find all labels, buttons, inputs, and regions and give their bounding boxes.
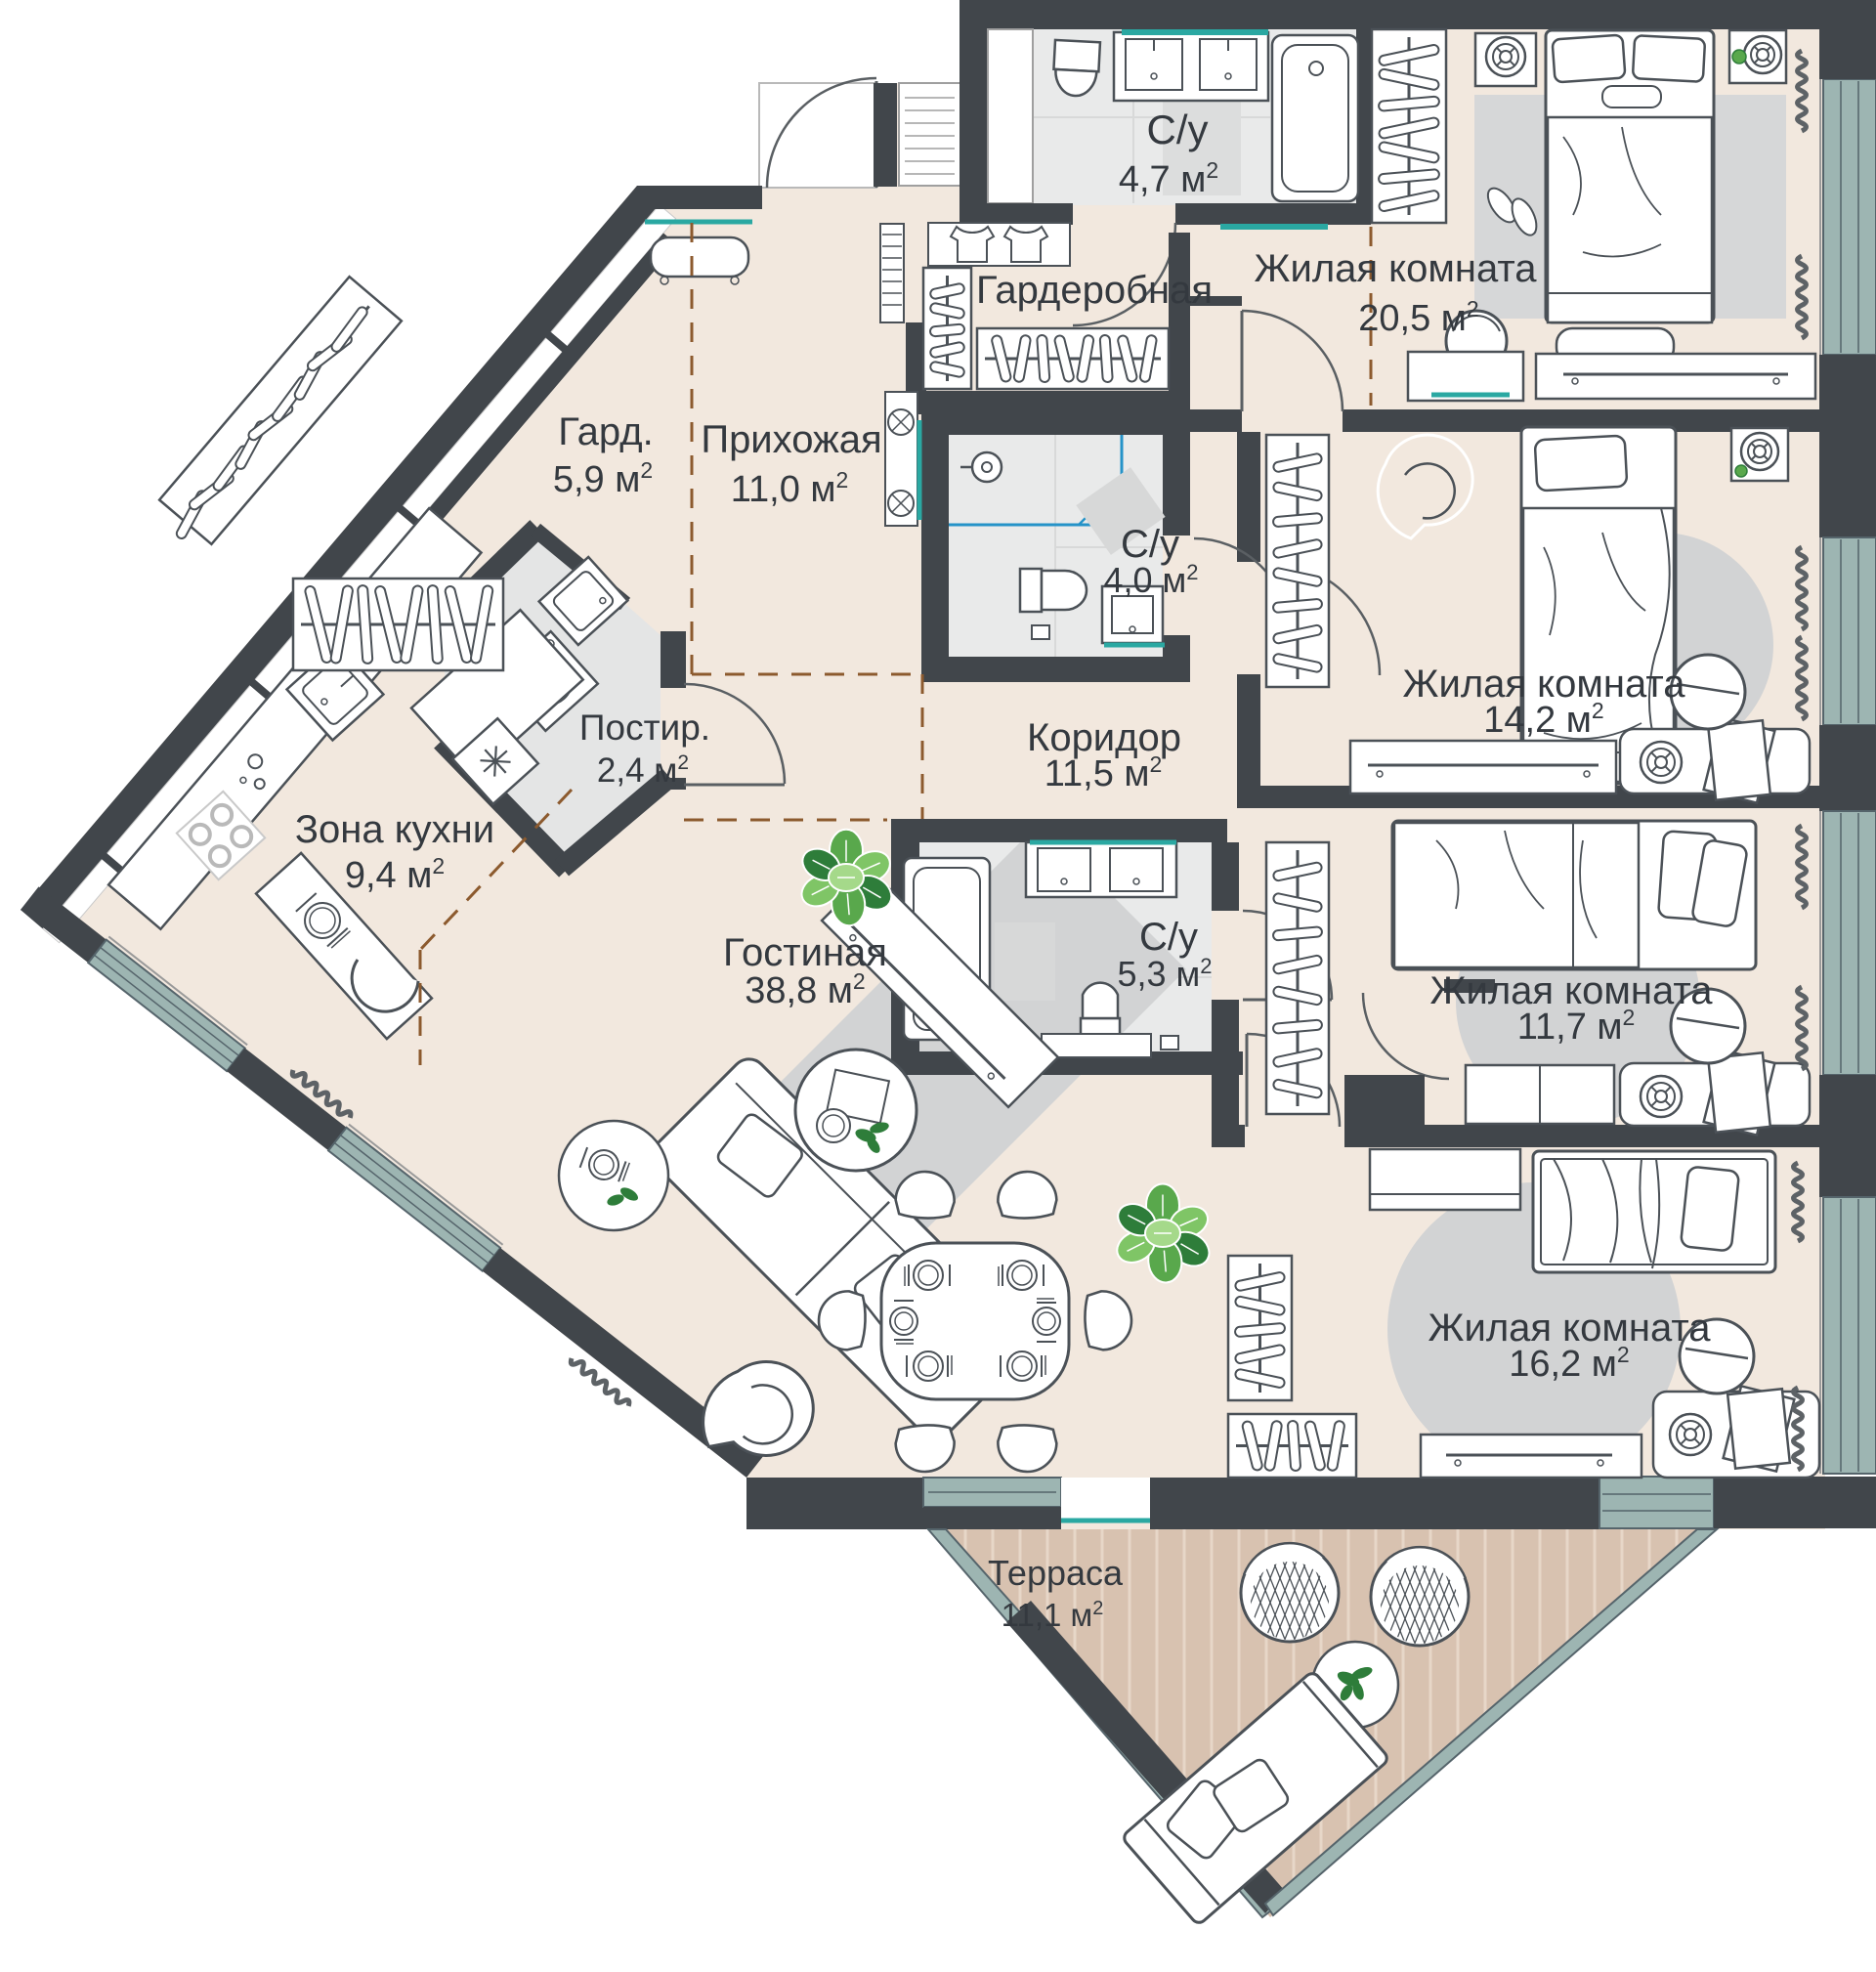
svg-text:Зона кухни: Зона кухни [295, 808, 494, 851]
svg-text:4,0 м2: 4,0 м2 [1103, 560, 1198, 600]
svg-text:11,5 м2: 11,5 м2 [1045, 751, 1163, 794]
svg-text:2,4 м2: 2,4 м2 [597, 751, 689, 790]
svg-text:5,9 м2: 5,9 м2 [553, 457, 653, 500]
svg-text:Прихожая: Прихожая [701, 418, 881, 461]
svg-text:4,7 м2: 4,7 м2 [1119, 157, 1218, 200]
svg-text:С/у: С/у [1139, 916, 1198, 959]
svg-text:9,4 м2: 9,4 м2 [345, 853, 445, 896]
svg-text:16,2 м2: 16,2 м2 [1509, 1342, 1629, 1385]
svg-text:Гардеробная: Гардеробная [976, 269, 1213, 312]
svg-text:Гард.: Гард. [558, 410, 653, 453]
svg-text:11,7 м2: 11,7 м2 [1517, 1005, 1636, 1048]
svg-text:Терраса: Терраса [988, 1553, 1124, 1593]
svg-text:11,1 м2: 11,1 м2 [1002, 1597, 1104, 1633]
svg-text:5,3 м2: 5,3 м2 [1117, 954, 1212, 994]
svg-text:С/у: С/у [1147, 107, 1209, 152]
svg-text:Постир.: Постир. [579, 707, 710, 748]
svg-text:20,5 м2: 20,5 м2 [1358, 296, 1478, 339]
svg-text:11,0 м2: 11,0 м2 [731, 467, 849, 510]
svg-text:14,2 м2: 14,2 м2 [1483, 698, 1603, 741]
svg-text:38,8 м2: 38,8 м2 [745, 968, 865, 1011]
svg-text:Жилая комната: Жилая комната [1255, 247, 1538, 290]
